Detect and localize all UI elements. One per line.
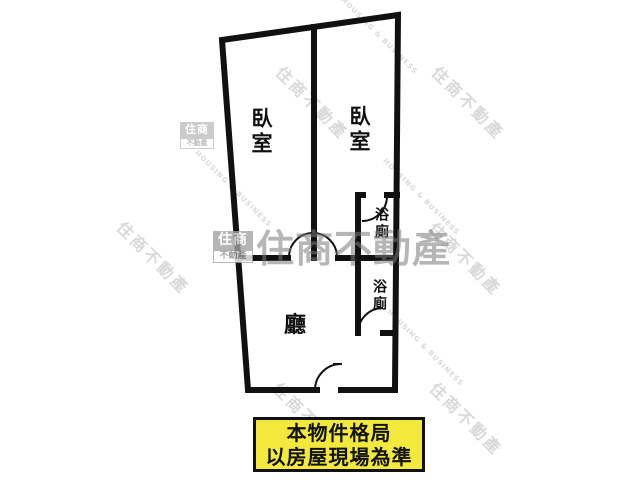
outer-wall xyxy=(222,15,398,390)
double-door-arc-left xyxy=(289,233,313,257)
disclaimer-line2: 以房屋現場為準 xyxy=(266,445,413,469)
disclaimer-box: 本物件格局 以房屋現場為準 xyxy=(253,417,425,472)
room-label-bath-lower: 浴廁 xyxy=(369,279,389,313)
floorplan-walls xyxy=(0,0,640,480)
entry-door-arc xyxy=(315,364,341,390)
room-label-living: 廳 xyxy=(284,307,306,339)
room-label-bedroom-left: 臥室 xyxy=(246,107,276,157)
floorplan-canvas: 住商不動產 住商不動產 住商不動產 住商不動產 住商不動產 住商不動產 HOUS… xyxy=(0,0,640,480)
room-label-bath-upper: 浴廁 xyxy=(371,207,391,241)
disclaimer-line1: 本物件格局 xyxy=(287,421,392,445)
room-label-bedroom-right: 臥室 xyxy=(344,105,374,155)
